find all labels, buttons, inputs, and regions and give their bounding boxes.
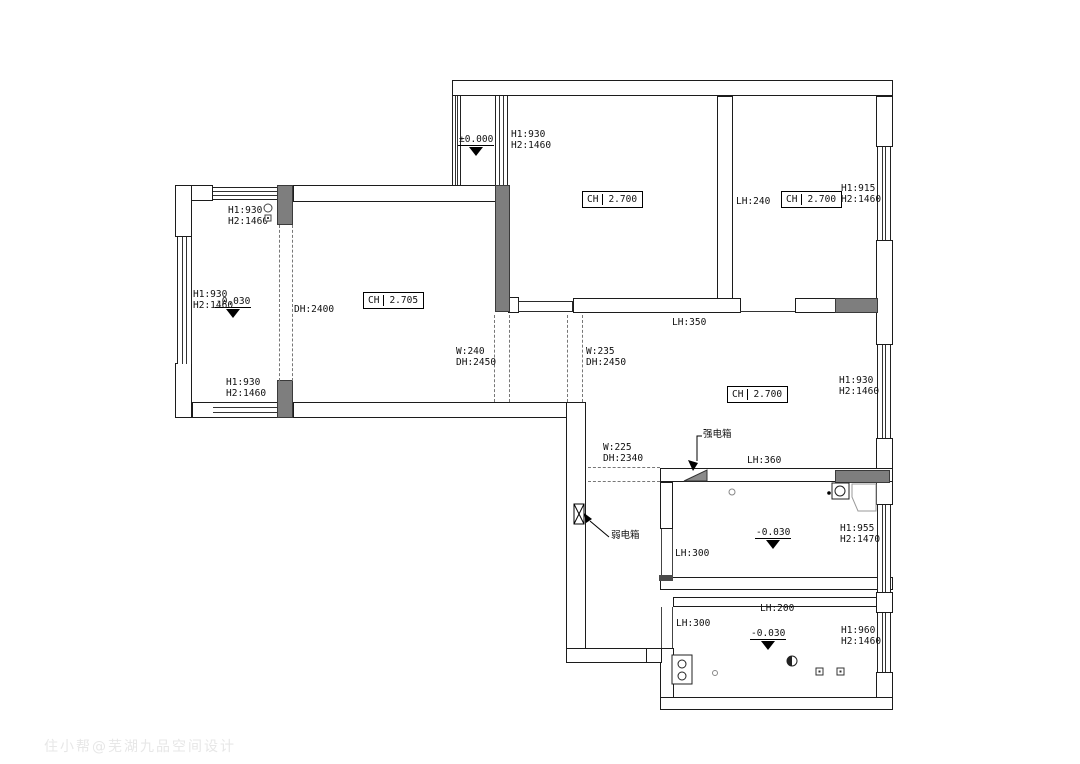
ceiling-height-upper-mid: CH2.700 (582, 191, 643, 208)
wall-corridor-left (566, 402, 586, 663)
window-label-living-right: H1:930H2:1460 (839, 375, 879, 397)
small-circle-icon (713, 671, 718, 676)
wall-leftwing-corner-tl-b (175, 185, 192, 237)
stove-icon (672, 655, 692, 684)
wall-hall-seg-b (518, 301, 573, 312)
washbasin-icon (832, 483, 849, 499)
window-label-entry-bay: H1:930H2:1460 (511, 129, 551, 151)
wall-kitchen-left-lower (660, 648, 674, 698)
wall-leftwing-corner-bl-a (175, 363, 192, 418)
beam-label-bath-left: LH:300 (675, 548, 709, 559)
wall-fill-bath-left-small (659, 575, 673, 581)
socket-icon (816, 668, 823, 675)
wall-right-seg4 (876, 592, 893, 613)
beam-label-bath-top: LH:360 (747, 455, 781, 466)
wall-fill-bath-top-right (835, 470, 890, 483)
kitchen-door-opening (661, 607, 673, 648)
opening-label-240: W:240DH:2450 (456, 346, 496, 368)
wall-leftwing-corner-bl-b (192, 402, 214, 418)
beam-label-living-top: LH:350 (672, 317, 706, 328)
wall-bath-bottom (660, 577, 893, 590)
wall-kitchen-bottom (660, 697, 893, 710)
opening-label-235: W:235DH:2450 (586, 346, 626, 368)
ceiling-light-icon (729, 489, 735, 495)
dash-door235-left (567, 315, 568, 402)
window-right-bath (877, 505, 891, 592)
opening-label-balcony: DH:2400 (294, 304, 334, 315)
strong-box-leader-line (697, 436, 702, 461)
window-label-leftwing-top: H1:930H2:1460 (228, 205, 268, 227)
weak-electric-box-label: 弱电箱 (611, 530, 640, 541)
dash-door240-right (509, 315, 510, 402)
window-label-top-right: H1:915H2:1460 (841, 183, 881, 205)
window-leftwing-bottom (213, 402, 277, 418)
dash-door225-bottom (588, 481, 660, 482)
wall-fill-balcony-bottom-column (277, 380, 293, 418)
wall-fill-hall-top-right (835, 298, 878, 313)
level-marker-entry: ±0.000 (458, 134, 494, 156)
window-label-leftwing-left: H1:930H2:1460 (193, 289, 233, 311)
dash-door225-top (588, 467, 660, 468)
window-leftwing-left (177, 237, 192, 364)
window-label-bath-right: H1:955H2:1470 (840, 523, 880, 545)
door-threshold-line (740, 311, 795, 312)
symbols-overlay (0, 0, 1080, 764)
wall-top-exterior (452, 80, 893, 96)
window-entry-bay-right (495, 96, 508, 185)
wall-leftwing-top-band (293, 185, 496, 202)
window-label-leftwing-bottom: H1:930H2:1460 (226, 377, 266, 399)
level-marker-bath: -0.030 (755, 527, 791, 549)
wall-fill-leftwing-right (495, 185, 510, 312)
weak-box-leader-line (590, 521, 609, 537)
shower-tray-icon (852, 484, 876, 511)
floor-plan: CH2.705 CH2.700 CH2.700 CH2.700 ±0.000 -… (0, 0, 1080, 764)
dash-door235-right (582, 315, 583, 402)
opening-label-225: W:225DH:2340 (603, 442, 643, 464)
socket-icon (837, 668, 844, 675)
wall-kitchen-left-step (645, 648, 662, 663)
watermark: 住小帮@芜湖九品空间设计 (44, 736, 236, 756)
dash-balcony-opening-right (292, 225, 293, 381)
wall-hall-seg-c (573, 298, 741, 313)
window-right-living (877, 345, 891, 438)
level-triangle-icon (766, 540, 780, 549)
wall-bath-left-upper (660, 482, 673, 529)
ceiling-height-top-right: CH2.700 (781, 191, 842, 208)
level-marker-kitchen: -0.030 (750, 628, 786, 650)
window-label-kitchen-right: H1:960H2:1460 (841, 625, 881, 647)
wall-leftwing-bottom-band (293, 402, 583, 418)
dash-balcony-opening-left (279, 225, 280, 381)
beam-label-kitchen-left: LH:300 (676, 618, 710, 629)
point-icon (827, 491, 831, 495)
ceiling-height-living: CH2.700 (727, 386, 788, 403)
window-leftwing-top (213, 187, 277, 200)
wall-corridor-bottom (566, 648, 647, 663)
wall-between-upper-rooms (717, 96, 733, 299)
wall-right-seg1 (876, 96, 893, 147)
level-triangle-icon (469, 147, 483, 156)
level-triangle-icon (761, 641, 775, 650)
ceiling-height-left-wing: CH2.705 (363, 292, 424, 309)
beam-label-top-right-room: LH:240 (736, 196, 770, 207)
half-lamp-icon (787, 656, 797, 666)
bath-door-opening (661, 529, 673, 577)
wall-right-seg2 (876, 240, 893, 345)
wall-hall-seg-d (795, 298, 836, 313)
beam-label-kitchen-top: LH:200 (760, 603, 794, 614)
wall-fill-balcony-top-column (277, 185, 293, 225)
strong-electric-box-label: 强电箱 (703, 429, 732, 440)
